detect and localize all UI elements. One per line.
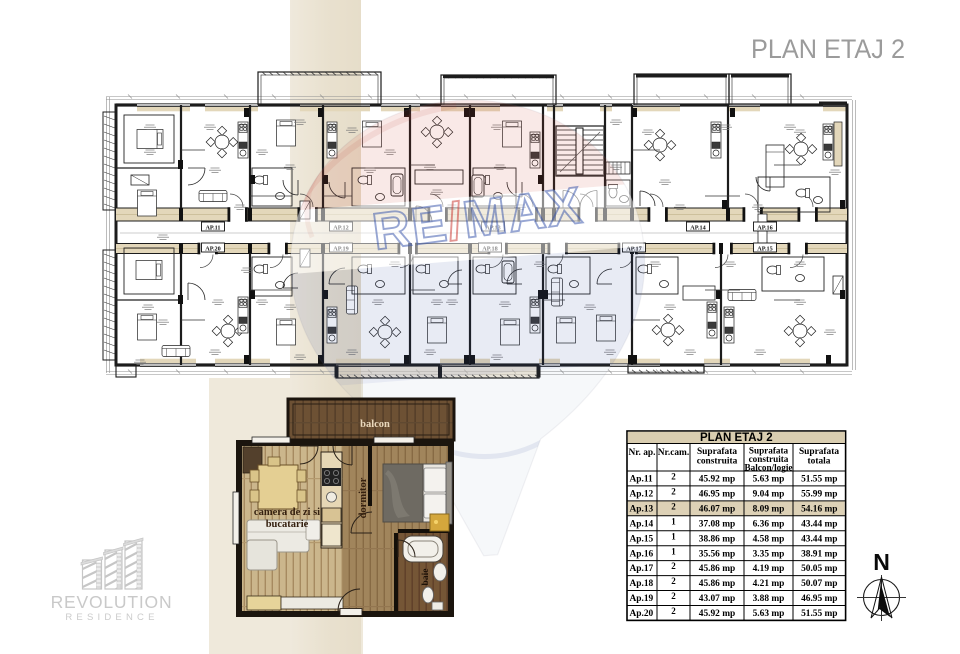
svg-text:50.05 mp: 50.05 mp <box>801 564 837 574</box>
svg-text:balcon: balcon <box>360 419 390 430</box>
svg-text:RESIDENCE: RESIDENCE <box>65 612 158 623</box>
svg-text:Ap.16: Ap.16 <box>630 549 654 559</box>
svg-text:construita: construita <box>697 457 738 467</box>
svg-text:4.21 mp: 4.21 mp <box>753 579 785 589</box>
svg-text:1: 1 <box>671 516 676 526</box>
svg-text:dormitor: dormitor <box>358 477 369 518</box>
svg-text:43.07 mp: 43.07 mp <box>699 594 735 604</box>
svg-text:PLAN ETAJ 2: PLAN ETAJ 2 <box>700 432 773 444</box>
svg-text:REVOLUTION: REVOLUTION <box>51 592 173 612</box>
svg-text:55.99 mp: 55.99 mp <box>801 490 837 500</box>
svg-text:Suprafata: Suprafata <box>799 447 839 457</box>
svg-text:Ap.14: Ap.14 <box>630 519 654 529</box>
svg-text:35.56 mp: 35.56 mp <box>699 549 735 559</box>
svg-text:45.92 mp: 45.92 mp <box>699 609 735 619</box>
svg-text:Nr. ap.: Nr. ap. <box>628 448 655 458</box>
svg-text:Ap.17: Ap.17 <box>630 564 654 574</box>
svg-text:5.63 mp: 5.63 mp <box>753 609 785 619</box>
svg-text:1: 1 <box>671 531 676 541</box>
svg-text:54.16 mp: 54.16 mp <box>801 505 837 515</box>
svg-text:Ap.18: Ap.18 <box>630 579 654 589</box>
svg-text:2: 2 <box>671 576 676 586</box>
svg-text:Ap.20: Ap.20 <box>630 609 654 619</box>
svg-text:51.55 mp: 51.55 mp <box>801 609 837 619</box>
svg-text:4.19 mp: 4.19 mp <box>753 564 785 574</box>
svg-text:Suprafata: Suprafata <box>697 447 737 457</box>
svg-text:38.86 mp: 38.86 mp <box>699 534 735 544</box>
svg-text:camera de zi si: camera de zi si <box>254 507 320 518</box>
svg-text:5.63 mp: 5.63 mp <box>753 475 785 485</box>
svg-text:Nr.cam.: Nr.cam. <box>658 448 689 458</box>
svg-text:totala: totala <box>808 457 831 467</box>
svg-text:46.95 mp: 46.95 mp <box>801 594 837 604</box>
svg-text:bucatarie: bucatarie <box>266 519 309 530</box>
svg-text:43.44 mp: 43.44 mp <box>801 534 837 544</box>
svg-text:46.95 mp: 46.95 mp <box>699 490 735 500</box>
svg-text:2: 2 <box>671 561 676 571</box>
svg-text:38.91 mp: 38.91 mp <box>801 549 837 559</box>
svg-text:Ap.15: Ap.15 <box>630 534 654 544</box>
svg-text:3.35 mp: 3.35 mp <box>753 549 785 559</box>
svg-text:2: 2 <box>671 606 676 616</box>
svg-text:45.86 mp: 45.86 mp <box>699 579 735 589</box>
svg-text:baie: baie <box>421 569 431 586</box>
svg-text:AP.11: AP.11 <box>205 224 220 231</box>
svg-text:N: N <box>873 549 890 575</box>
svg-text:AP.16: AP.16 <box>757 224 772 231</box>
svg-text:2: 2 <box>671 487 676 497</box>
svg-text:6.36 mp: 6.36 mp <box>753 519 785 529</box>
svg-text:51.55 mp: 51.55 mp <box>801 475 837 485</box>
svg-text:2: 2 <box>671 472 676 482</box>
svg-text:46.07 mp: 46.07 mp <box>699 505 735 515</box>
svg-text:Ap.11: Ap.11 <box>630 475 653 485</box>
svg-text:PLAN ETAJ 2: PLAN ETAJ 2 <box>751 34 905 64</box>
svg-text:2: 2 <box>671 591 676 601</box>
svg-text:Ap.13: Ap.13 <box>630 505 654 515</box>
svg-text:50.07 mp: 50.07 mp <box>801 579 837 589</box>
svg-text:9.04 mp: 9.04 mp <box>753 490 785 500</box>
svg-text:Ap.19: Ap.19 <box>630 594 654 604</box>
svg-text:45.92 mp: 45.92 mp <box>699 475 735 485</box>
svg-text:4.58 mp: 4.58 mp <box>753 534 785 544</box>
svg-text:2: 2 <box>671 502 676 512</box>
svg-text:AP.15: AP.15 <box>757 245 772 252</box>
svg-text:3.88 mp: 3.88 mp <box>753 594 785 604</box>
svg-text:8.09 mp: 8.09 mp <box>753 505 785 515</box>
svg-text:AP.20: AP.20 <box>205 245 220 252</box>
svg-text:45.86 mp: 45.86 mp <box>699 564 735 574</box>
svg-text:43.44 mp: 43.44 mp <box>801 519 837 529</box>
svg-text:37.08 mp: 37.08 mp <box>699 519 735 529</box>
svg-text:AP.14: AP.14 <box>690 224 705 231</box>
svg-text:Ap.12: Ap.12 <box>630 490 654 500</box>
svg-text:1: 1 <box>671 546 676 556</box>
